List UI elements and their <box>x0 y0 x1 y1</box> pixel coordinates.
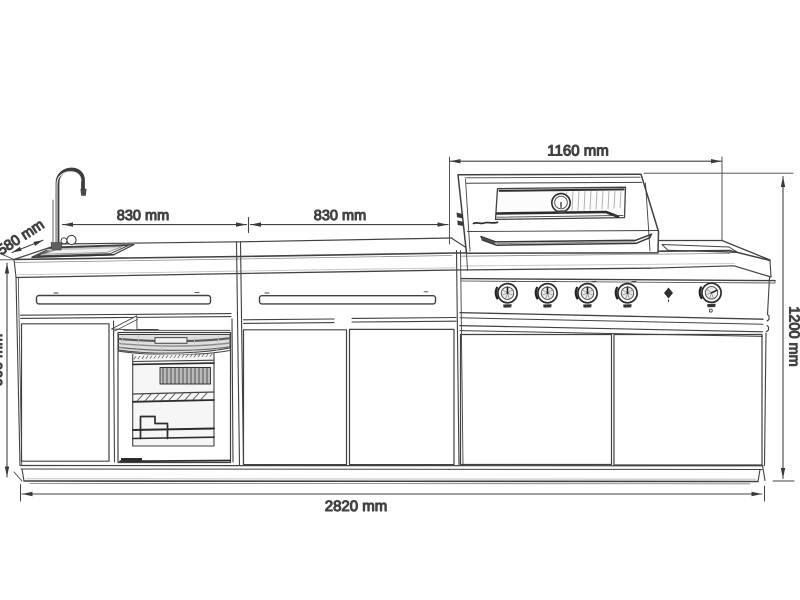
svg-text:830 mm: 830 mm <box>314 208 366 224</box>
svg-text:830 mm: 830 mm <box>117 208 169 224</box>
svg-text:2820 mm: 2820 mm <box>325 498 388 515</box>
svg-text:580 mm: 580 mm <box>0 217 47 259</box>
svg-text:1160 mm: 1160 mm <box>547 143 608 160</box>
svg-text:900 mm: 900 mm <box>0 334 6 386</box>
svg-text:1200 mm: 1200 mm <box>786 306 800 366</box>
